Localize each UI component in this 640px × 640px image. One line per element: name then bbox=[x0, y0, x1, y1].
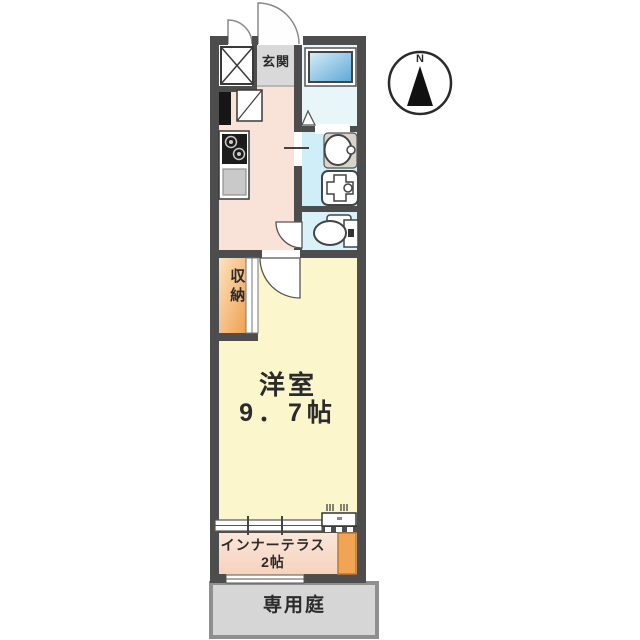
wash-basin bbox=[324, 133, 357, 168]
terrace-storage-block bbox=[338, 533, 356, 574]
compass bbox=[389, 52, 451, 114]
shoe-storage-box bbox=[221, 47, 253, 84]
floor-plan-drawing bbox=[0, 0, 640, 640]
terrace-floor bbox=[219, 533, 357, 575]
private-garden-area bbox=[211, 583, 377, 637]
floor-plan: 玄関 収納 洋室 9．7帖 インナーテラス 2帖 専用庭 N bbox=[0, 0, 640, 640]
closet-floor bbox=[219, 258, 246, 333]
entrance-door-swing bbox=[258, 3, 299, 44]
garden-sliding-window bbox=[226, 575, 304, 583]
pipe-space bbox=[219, 92, 231, 125]
entrance-storage-door-swing bbox=[228, 20, 252, 44]
stove bbox=[222, 134, 247, 164]
room-door-opening bbox=[262, 250, 300, 258]
kitchen-sink bbox=[223, 169, 246, 195]
genkan-tile bbox=[255, 45, 294, 86]
refrigerator-space bbox=[237, 90, 262, 121]
bathtub bbox=[305, 48, 356, 86]
washing-machine-pan bbox=[322, 171, 358, 205]
closet-door bbox=[246, 258, 258, 333]
